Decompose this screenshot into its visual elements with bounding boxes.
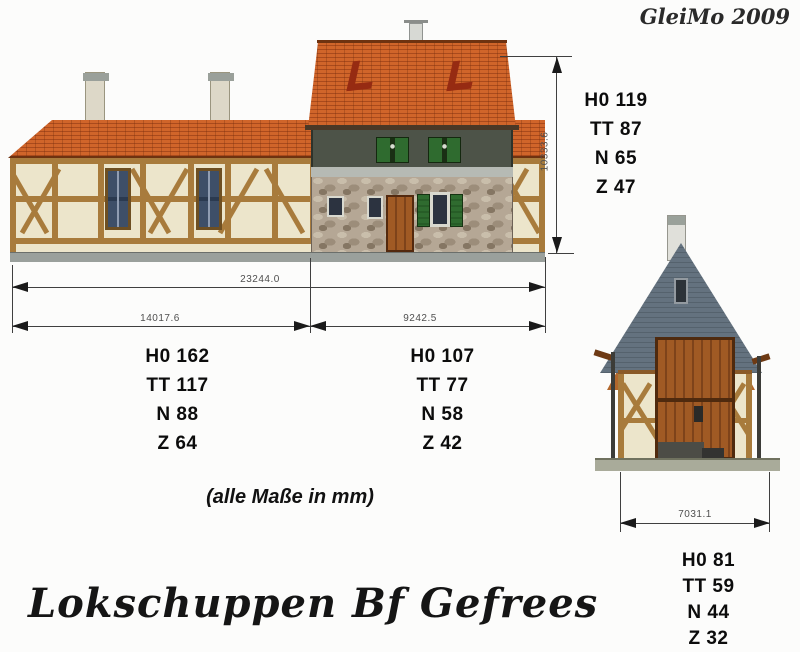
- door-batten: [658, 398, 732, 402]
- scale-line: Z 64: [105, 429, 250, 458]
- arrowhead-right: [529, 282, 545, 292]
- timber-post: [140, 158, 146, 244]
- height-dimension-label: 10333.6: [540, 124, 551, 180]
- ground-clutter: [658, 442, 704, 458]
- author-signature: GleiMo 2009: [555, 4, 790, 29]
- scale-line: H0 119: [574, 86, 658, 115]
- ground-clutter: [702, 448, 724, 458]
- house-roof-ridge: [317, 40, 507, 43]
- arrowhead-right: [754, 518, 770, 528]
- scale-line: H0 162: [105, 342, 250, 371]
- shutter-left: [417, 194, 430, 227]
- house-small-window: [367, 196, 383, 219]
- house-dimension-line: [310, 326, 545, 327]
- scale-line: N 65: [574, 144, 658, 173]
- overall-dimension-line: [12, 287, 545, 288]
- shuttered-window: [376, 137, 409, 163]
- house-upper-band: [311, 130, 513, 167]
- shutter-right: [450, 194, 463, 227]
- shed-chimney-left: [85, 72, 105, 124]
- shed-dimension-label: 14017.6: [100, 313, 220, 324]
- ground-strip: [595, 458, 780, 471]
- arrowhead-left: [12, 321, 28, 331]
- door-handle: [694, 406, 703, 422]
- timber-post: [188, 158, 194, 244]
- arrowhead-down: [552, 237, 562, 253]
- house-roof: [308, 42, 516, 128]
- scale-line: Z 47: [574, 173, 658, 202]
- timber-post: [272, 158, 278, 244]
- shed-dimension-line: [12, 326, 310, 327]
- end-scale-block: H0 81 TT 59 N 44 Z 32: [636, 548, 781, 652]
- house-chimney-cap: [404, 20, 428, 23]
- extension-line-right: [545, 257, 546, 333]
- scale-line: H0 107: [370, 342, 515, 371]
- scale-line: TT 77: [370, 371, 515, 400]
- arrowhead-left: [310, 321, 326, 331]
- height-dimension-line: [556, 57, 557, 253]
- scale-line: Z 32: [636, 626, 781, 652]
- downpipe-right: [757, 356, 761, 460]
- shed-window: [196, 168, 222, 230]
- chimney-cap: [208, 73, 234, 81]
- chimney-cap: [668, 216, 685, 225]
- scale-line: Z 42: [370, 429, 515, 458]
- foundation-strip: [10, 252, 545, 262]
- height-scale-block: H0 119 TT 87 N 65 Z 47: [574, 86, 658, 202]
- shed-window: [105, 168, 131, 230]
- scale-line: TT 117: [105, 371, 250, 400]
- shuttered-window: [428, 137, 461, 163]
- window-pane: [430, 192, 450, 227]
- timber-post: [225, 158, 231, 244]
- timber-post: [98, 158, 104, 244]
- units-note: (alle Maße in mm): [155, 486, 425, 509]
- house-dimension-label: 9242.5: [365, 313, 475, 324]
- scale-line: N 44: [636, 600, 781, 626]
- downpipe-left: [611, 352, 615, 460]
- house-floor-strip: [311, 167, 513, 177]
- drawing-title: Lokschuppen Bf Gefrees: [28, 580, 568, 627]
- scale-line: N 88: [105, 400, 250, 429]
- eave-stub-left: [594, 349, 613, 360]
- house-shuttered-window-right: [417, 192, 463, 227]
- shed-chimney-right: [210, 72, 230, 124]
- eave-stub-right: [752, 353, 771, 364]
- scale-line: N 58: [370, 400, 515, 429]
- overall-dimension-label: 23244.0: [200, 274, 320, 285]
- shed-scale-block: H0 162 TT 117 N 88 Z 64: [105, 342, 250, 458]
- scale-line: H0 81: [636, 548, 781, 574]
- timber-post: [746, 374, 752, 460]
- scale-line: TT 59: [636, 574, 781, 600]
- gable-window: [674, 278, 688, 304]
- arrowhead-left: [620, 518, 636, 528]
- house-small-window: [327, 196, 344, 217]
- house-scale-block: H0 107 TT 77 N 58 Z 42: [370, 342, 515, 458]
- end-dimension-label: 7031.1: [640, 509, 750, 520]
- arrowhead-right: [529, 321, 545, 331]
- extension-line-base: [548, 253, 574, 254]
- chimney-cap: [83, 73, 109, 81]
- house-door: [386, 195, 414, 252]
- arrowhead-right: [294, 321, 310, 331]
- arrowhead-left: [12, 282, 28, 292]
- arrowhead-up: [552, 57, 562, 73]
- end-dimension-line: [620, 523, 770, 524]
- scale-line: TT 87: [574, 115, 658, 144]
- drawing-sheet: GleiMo 2009: [0, 0, 800, 652]
